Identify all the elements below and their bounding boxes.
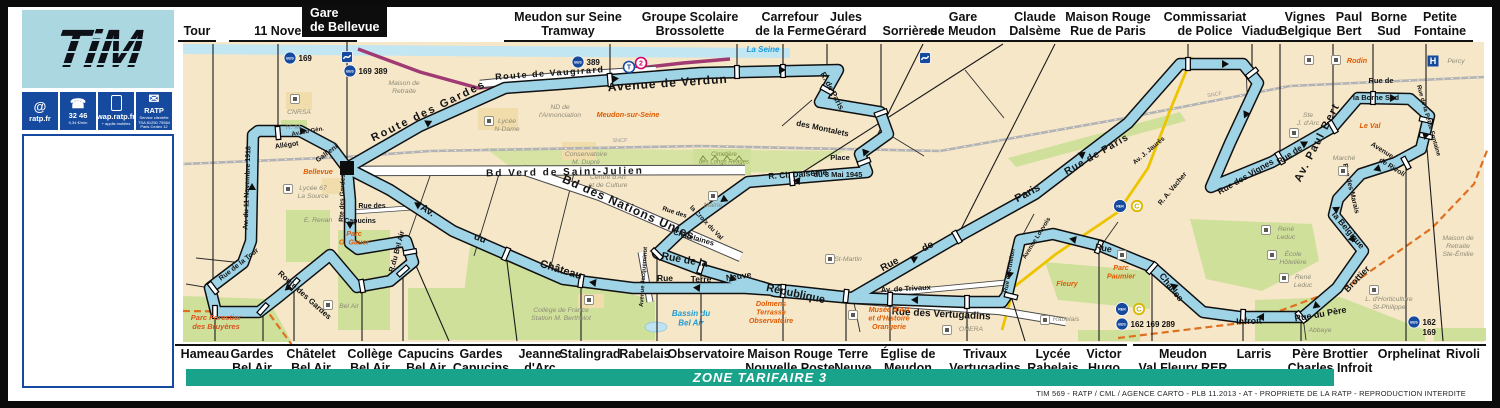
sncf-station-badge (342, 52, 353, 63)
mobile-icon (111, 95, 122, 111)
svg-text:169: 169 (1423, 328, 1437, 337)
poi-icon (1280, 274, 1289, 283)
poi-label: Le Val (1360, 121, 1382, 130)
poi-icon (709, 192, 718, 201)
poi-label: M. Dupré (572, 159, 600, 166)
street-label: Infroit (1236, 316, 1262, 327)
fare-zone-label: ZONE TARIFAIRE 3 (693, 370, 827, 385)
poi-label: St-Philippe (1373, 304, 1406, 311)
poi-label: E. Renan (304, 217, 333, 224)
poi-label: René (1278, 226, 1294, 233)
poi-label: N-Dame (494, 126, 520, 133)
route-map: Route des GardesAvenue de VerdunRoute de… (0, 0, 1500, 408)
street-label: Rue de (1368, 76, 1393, 85)
phone-icon: ☎ (70, 97, 86, 110)
bus-badge: BUS162 169 289 (1116, 318, 1176, 330)
contact-mail[interactable]: ✉ RATP Service clientèle TSA 81250 75564… (136, 92, 172, 130)
bus-badge: BUS389 (572, 56, 600, 68)
poi-icon (826, 255, 835, 264)
svg-text:C: C (1134, 202, 1140, 211)
svg-text:389: 389 (587, 58, 601, 67)
svg-text:2: 2 (639, 61, 643, 68)
svg-text:169: 169 (299, 54, 313, 63)
gare-de-bellevue-terminus-marker (340, 161, 354, 175)
stop-marker (887, 292, 892, 305)
poi-icon (943, 326, 952, 335)
poi-icon (849, 311, 858, 320)
poi-icon (1370, 286, 1379, 295)
poi-label: Retraite (392, 88, 416, 95)
poi-icon (1305, 56, 1314, 65)
stop-marker (965, 296, 970, 309)
svg-text:BUS: BUS (1410, 320, 1418, 324)
poi-label: La Seine (747, 45, 780, 54)
poi-label: Meudon-sur-Seine (597, 110, 660, 119)
poi-label: des Bruyères (192, 322, 240, 331)
street-label: la Borne Sud (1353, 93, 1400, 102)
svg-text:RER: RER (1116, 204, 1124, 208)
poi-label: Lycée 67 (299, 185, 327, 192)
svg-text:BUS: BUS (1118, 322, 1126, 326)
poi-label: La Source (298, 193, 329, 200)
bus-badge: BUS169 389 (344, 65, 388, 77)
street-label: Rue (657, 273, 673, 283)
empty-info-panel (22, 134, 174, 388)
poi-label: Orangerie (872, 322, 906, 331)
street-label: Capucins (344, 218, 376, 225)
street-label: du 8 Mai 1945 (814, 170, 863, 179)
poi-label: Mairie (704, 202, 723, 209)
poi-label: École (1284, 249, 1301, 258)
poi-label: et de Culture (589, 182, 628, 189)
poi-label: Percy (1447, 58, 1465, 65)
poi-icon (1268, 251, 1277, 260)
poi-label: ONERA (959, 326, 984, 333)
poi-label: Cimetière (711, 152, 737, 158)
svg-text:T: T (627, 65, 632, 72)
poi-label: Observatoire (749, 316, 793, 325)
poi-label: Marché (1333, 155, 1356, 162)
stop-marker (1186, 58, 1191, 71)
poi-label: Conservatoire (565, 151, 608, 158)
contact-tiles: @ ratp.fr ☎ 32 46 0,34 €/min wap.ratp.fr… (22, 92, 174, 130)
poi-label: G. Gauer (339, 238, 371, 247)
poi-icon (324, 301, 333, 310)
street-label: Terre (691, 274, 712, 284)
contact-phone[interactable]: ☎ 32 46 0,34 €/min (60, 92, 96, 130)
stop-marker (843, 289, 849, 302)
tim-logo-box: TiM (22, 10, 174, 88)
poi-label: Centre d'Art (590, 174, 627, 181)
svg-text:RER: RER (1118, 307, 1126, 311)
poi-label: Lycée (498, 118, 516, 125)
svg-text:BUS: BUS (574, 60, 582, 64)
poi-label: ND de (550, 104, 569, 111)
svg-text:169 389: 169 389 (359, 67, 388, 76)
poi-label: CNRSA (287, 109, 311, 116)
tim-bus-map-page: Route des GardesAvenue de VerdunRoute de… (0, 0, 1500, 408)
at-icon: @ (34, 100, 47, 113)
poi-label: Ste (1303, 112, 1313, 119)
sncf-station-badge (920, 53, 931, 64)
poi-icon (1041, 316, 1050, 325)
poi-label: Collège de France (533, 307, 589, 314)
street-label: Rue des (358, 203, 385, 210)
poi-icon (485, 117, 494, 126)
stop-marker (275, 126, 281, 139)
contact-mobile[interactable]: wap.ratp.fr + applis mobiles (98, 92, 134, 130)
poi-label: Hôtelière (1279, 259, 1306, 266)
poi-label: Fleury (1056, 279, 1079, 288)
poi-label: Rabelais (1053, 316, 1080, 323)
sidebar: TiM @ ratp.fr ☎ 32 46 0,34 €/min wap.rat… (22, 10, 174, 388)
poi-icon (1332, 56, 1341, 65)
street-label: SNCF (612, 138, 628, 144)
contact-web[interactable]: @ ratp.fr (22, 92, 58, 130)
poi-label: Maison de (1442, 235, 1474, 242)
poi-label: Ste-Émilie (1443, 249, 1474, 258)
poi-icon (1290, 129, 1299, 138)
rer-c-badge: C (1132, 201, 1142, 211)
poi-label: l'Annonciation (539, 112, 581, 119)
rer-c-badge: C (1134, 304, 1144, 314)
poi-icon (284, 185, 293, 194)
poi-label: Maison de (388, 80, 420, 87)
poi-icon (1262, 226, 1271, 235)
fare-zone-bar: ZONE TARIFAIRE 3 (186, 369, 1334, 386)
poi-label: J. d'Arc (1296, 120, 1320, 127)
poi-label: Bel Air (678, 318, 704, 327)
poi-label: des Longs Réages (699, 159, 749, 165)
svg-text:162 169 289: 162 169 289 (1131, 320, 1176, 329)
rer-badge: RER (1116, 303, 1129, 316)
svg-text:BUS: BUS (286, 56, 294, 60)
poi-label: Leduc (1294, 282, 1313, 289)
credits-line: TIM 569 - RATP / CML / AGENCE CARTO - PL… (1036, 389, 1466, 398)
tim-logo: TiM (51, 22, 145, 76)
poi-label: Paumier (1107, 272, 1137, 281)
poi-label: Abbaye (1307, 327, 1331, 334)
rer-badge: RER (1114, 200, 1127, 213)
svg-text:C: C (1136, 305, 1142, 314)
poi-icon (1339, 167, 1348, 176)
poi-label: René (1295, 274, 1311, 281)
poi-icon (1118, 251, 1127, 260)
poi-icon (585, 296, 594, 305)
poi-label: Rodin (1347, 56, 1368, 65)
poi-icon (291, 95, 300, 104)
poi-label: Bellevue (303, 167, 333, 176)
poi-label: Bassin du (672, 309, 710, 318)
svg-text:H: H (1430, 56, 1437, 66)
poi-label: Retraite (1446, 243, 1470, 250)
poi-label: Parc Forestier (191, 313, 243, 322)
bassin-pond (645, 322, 667, 332)
svg-text:162: 162 (1423, 318, 1437, 327)
bus-badge: BUS169 (284, 52, 312, 64)
svg-text:BUS: BUS (346, 69, 354, 73)
stop-marker (735, 65, 740, 78)
poi-label: Leduc (1277, 234, 1296, 241)
poi-label: St-Martin (834, 256, 862, 263)
mail-icon: ✉ (149, 92, 160, 105)
street-label: Place (830, 153, 850, 162)
poi-label: R. M. (286, 124, 302, 131)
poi-label: Station M. Berthelot (531, 315, 592, 322)
hospital-badge: H (1428, 56, 1439, 67)
poi-label: Bel Air (339, 303, 360, 310)
poi-label: L. d'Horticulture (1365, 296, 1413, 303)
